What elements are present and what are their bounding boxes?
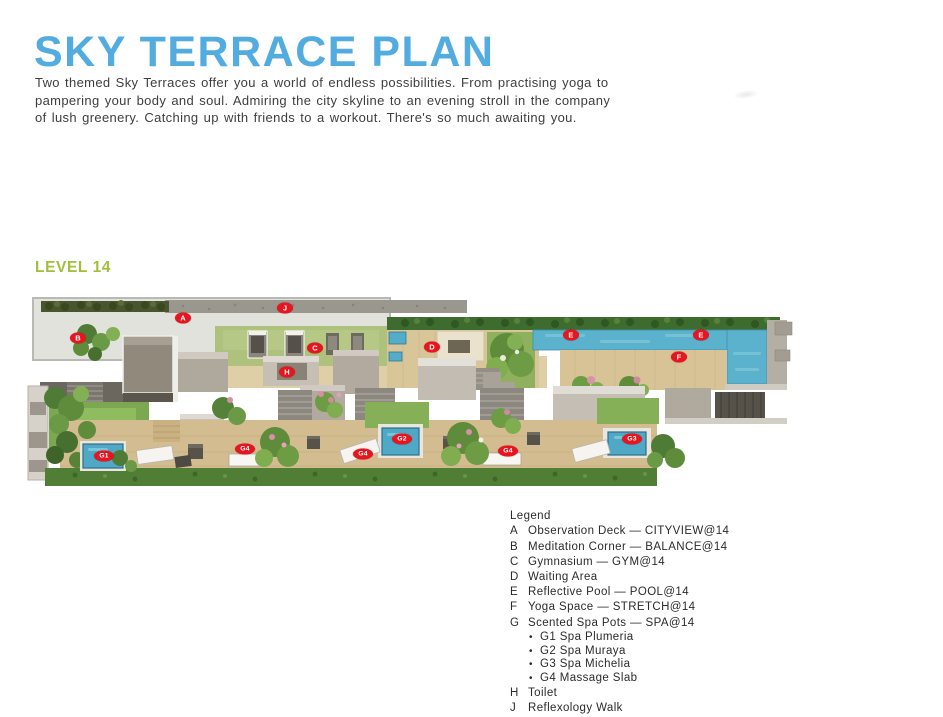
plan-marker-h: H	[279, 367, 295, 378]
plan-marker-g4: G4	[498, 446, 518, 457]
legend-item-e: EReflective Pool — POOL@14	[510, 585, 729, 600]
level-label: LEVEL 14	[35, 259, 111, 277]
plan-marker-d: D	[424, 342, 440, 353]
floor-plan: JABCHDEEFG1G4G4G2G4G3	[25, 290, 795, 500]
legend-item-g: GScented Spa Pots — SPA@14	[510, 616, 729, 631]
legend-subitem: •G2 Spa Muraya	[510, 645, 729, 659]
plan-marker-c: C	[307, 343, 323, 354]
plan-marker-g2: G2	[392, 434, 412, 445]
intro-paragraph: Two themed Sky Terraces offer you a worl…	[35, 74, 695, 127]
plan-marker-f: F	[671, 352, 687, 363]
page-title: SKY TERRACE PLAN	[34, 29, 494, 75]
legend-subitem: •G3 Spa Michelia	[510, 658, 729, 672]
legend-item-j: JReflexology Walk	[510, 701, 729, 716]
legend-item-h: HToilet	[510, 686, 729, 701]
legend-item-f: FYoga Space — STRETCH@14	[510, 600, 729, 615]
legend-item-d: DWaiting Area	[510, 570, 729, 585]
intro-line: pampering your body and soul. Admiring t…	[35, 92, 695, 110]
legend-item-b: BMeditation Corner — BALANCE@14	[510, 540, 729, 555]
legend: Legend AObservation Deck — CITYVIEW@14BM…	[510, 509, 729, 716]
plan-marker-j: J	[277, 303, 293, 314]
legend-item-a: AObservation Deck — CITYVIEW@14	[510, 524, 729, 539]
scan-smudge	[733, 88, 760, 101]
intro-line: Two themed Sky Terraces offer you a worl…	[35, 74, 695, 92]
plan-marker-a: A	[175, 313, 191, 324]
plan-marker-g4: G4	[353, 449, 373, 460]
legend-heading: Legend	[510, 509, 729, 524]
legend-subitem: •G4 Massage Slab	[510, 672, 729, 686]
legend-item-c: CGymnasium — GYM@14	[510, 555, 729, 570]
plan-marker-g1: G1	[94, 451, 114, 462]
legend-items: AObservation Deck — CITYVIEW@14BMeditati…	[510, 524, 729, 716]
plan-marker-e: E	[563, 330, 579, 341]
plan-marker-g3: G3	[622, 434, 642, 445]
plan-marker-e: E	[693, 330, 709, 341]
legend-subitem: •G1 Spa Plumeria	[510, 631, 729, 645]
plan-marker-b: B	[70, 333, 86, 344]
plan-marker-g4: G4	[235, 444, 255, 455]
plan-markers: JABCHDEEFG1G4G4G2G4G3	[25, 290, 795, 500]
intro-line: of lush greenery. Catching up with frien…	[35, 109, 695, 127]
